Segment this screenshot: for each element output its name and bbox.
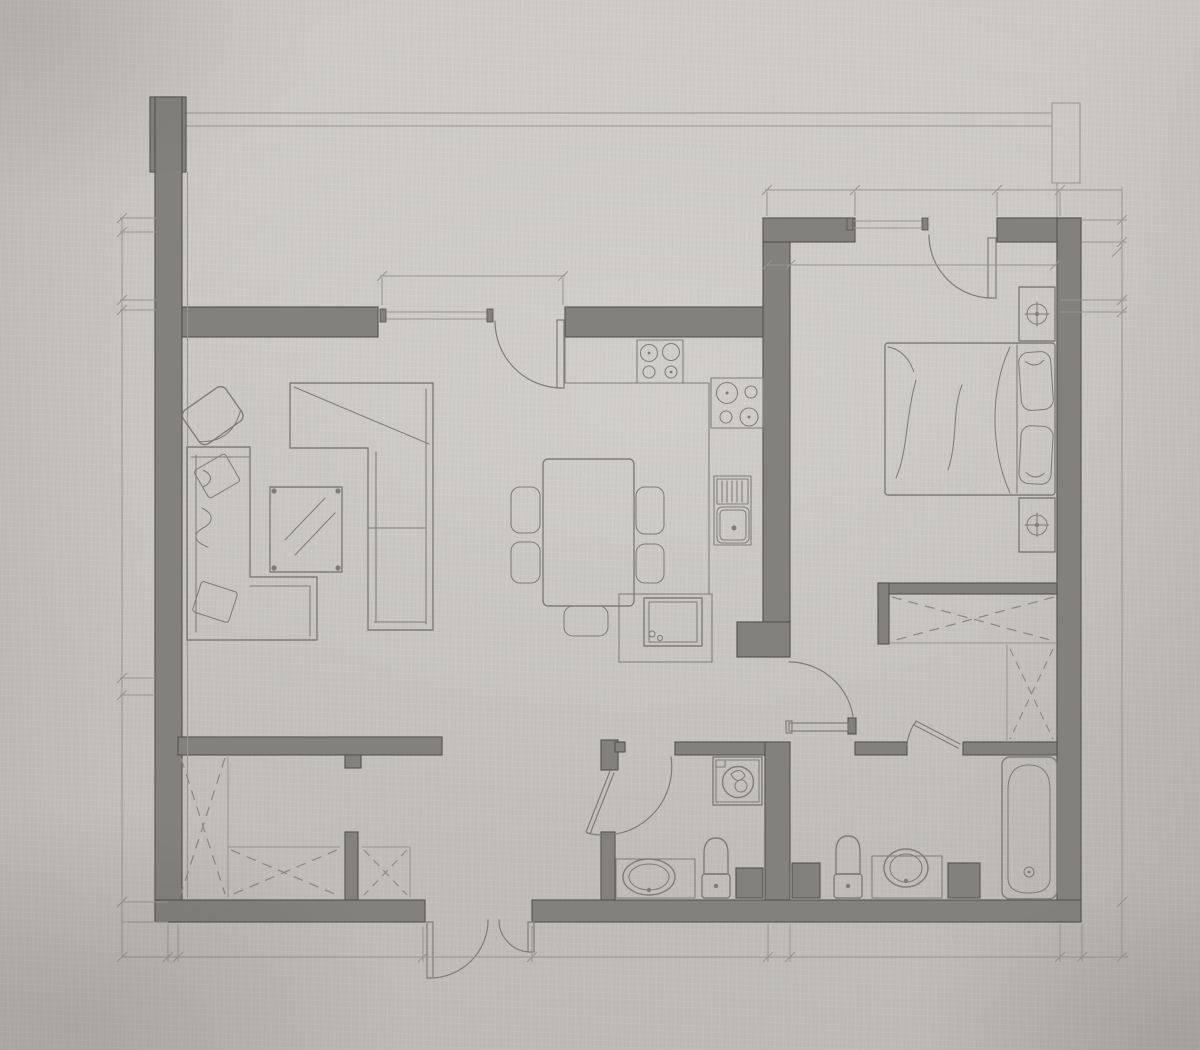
living-window-glazing: [382, 312, 493, 319]
wardrobe-x-dashes: [231, 850, 337, 895]
wall-kitchen-bedroom: [763, 242, 790, 657]
wall-right: [1057, 218, 1081, 922]
hall-bathroom-door: [586, 757, 672, 835]
floor-plan-drawing: [0, 0, 1200, 1050]
wall-bottom-right: [532, 900, 1081, 922]
bathtub: [1002, 757, 1057, 899]
sectional-sofa: [290, 383, 433, 630]
nightstand-bottom: [1019, 498, 1055, 552]
bedroom-window: [847, 218, 928, 230]
bedroom-room-door: [786, 662, 854, 733]
door-leaf: [557, 320, 564, 388]
dining-chair: [564, 606, 608, 636]
wall-storage-notch: [345, 755, 361, 768]
dimension-lines-bottom: [117, 924, 1128, 962]
wall-hall-bath-b: [855, 742, 907, 755]
bed-pillow: [1019, 425, 1054, 485]
living-window-end-cap: [380, 309, 386, 322]
storage-wardrobe-tall: [181, 755, 228, 898]
balcony-terrace: [186, 103, 1081, 218]
entry-double-door: [427, 920, 534, 978]
wall-bathroom-divider: [765, 742, 790, 900]
living-balcony-door: [495, 320, 564, 388]
door-swing-arc: [929, 235, 992, 298]
wall-bedroom-niche: [878, 583, 1057, 594]
vanity-block-mainbath-right: [948, 863, 980, 898]
wardrobe-x-dashes: [364, 850, 407, 895]
door-swing-arc: [907, 724, 914, 745]
kitchen-sink: [714, 476, 751, 545]
dim-risers-above-bedroom: [767, 192, 1060, 216]
corner-sofa-outline: [187, 447, 317, 640]
bed-blanket-folds: [888, 347, 1010, 493]
hallbath-toilet: [702, 838, 730, 898]
dim-risers-living-window: [382, 278, 563, 305]
bathtub-inner: [1008, 765, 1050, 893]
dining-chair: [511, 487, 540, 533]
throw-pillow: [193, 453, 240, 499]
bedroom-window-end-cap: [847, 218, 853, 230]
dining-table: [543, 459, 634, 606]
hallbath-washbasin: [616, 859, 695, 898]
main-bathroom-door: [907, 721, 960, 748]
entry-door-arc-left: [430, 920, 488, 978]
wall-hall-bath-a: [675, 742, 767, 755]
dining-chair: [636, 544, 664, 583]
bed-pillow: [1018, 351, 1054, 411]
dimension-lines-top: [377, 185, 1122, 305]
coffee-table-top: [270, 487, 342, 572]
door-leaf: [586, 771, 614, 834]
wardrobe-x-dashes: [892, 597, 1054, 641]
armchair: [180, 384, 248, 449]
wall-hallbath-left: [601, 832, 615, 900]
walls: [150, 97, 1081, 922]
corner-sofa: [187, 447, 317, 640]
basin-drain-dot: [904, 879, 908, 883]
balcony-pillar-base-line: [1052, 183, 1081, 218]
double-bed: [885, 343, 1055, 495]
mainbath-washbasin: [872, 849, 942, 898]
vanity-block-hallbath: [736, 868, 763, 898]
corner-sofa-cushion-folds: [196, 470, 211, 547]
washing-machine: [713, 757, 762, 805]
main-bathroom-fixtures: [834, 757, 1057, 899]
wardrobe-x-dashes: [1010, 649, 1053, 739]
entry-door-arc-right: [499, 920, 531, 952]
bed-outline: [885, 343, 1055, 495]
sink-drainboard-lines: [722, 481, 742, 502]
wall-bedroom-niche-return: [878, 583, 889, 644]
nightstand-top: [1019, 287, 1055, 341]
storage-wardrobe-wide: [228, 847, 340, 895]
bedroom-wardrobe-1: [890, 597, 1057, 643]
storage-room-furniture: [181, 755, 410, 898]
living-window-end-cap: [487, 309, 493, 322]
entry-door-leaf-right: [528, 922, 534, 952]
bedroom-wardrobe-2: [1007, 645, 1053, 742]
throw-pillow: [192, 581, 238, 623]
wall-left: [155, 97, 182, 922]
wall-storage-divider: [345, 832, 358, 900]
door-leaf: [988, 238, 996, 298]
dining-chair: [511, 542, 540, 583]
wall-storage-top: [178, 737, 442, 755]
washing-machine-drum-swirl: [731, 770, 745, 780]
photographed-paper-sheet: [0, 0, 1200, 1050]
living-room-window: [380, 309, 493, 322]
door-leaf: [914, 721, 960, 748]
wall-living-top: [182, 307, 378, 337]
door-swing-arc: [495, 321, 562, 388]
bedroom-balcony-door: [929, 235, 996, 298]
bedroom-furniture: [885, 287, 1057, 742]
dining-area: [511, 459, 664, 636]
coffee-table-glass-marks: [285, 498, 335, 555]
vanity-block-mainbath-left: [792, 863, 820, 898]
balcony-corner-pillar: [1052, 103, 1080, 183]
wall-kitchen-foot: [737, 622, 790, 657]
cooktop-4-burner: [711, 378, 763, 428]
coffee-table: [270, 487, 342, 572]
bedroom-window-glazing: [850, 221, 925, 228]
dim-ticks-right: [1112, 215, 1127, 907]
bedroom-window-end-cap: [922, 218, 928, 230]
basin-drain-dot: [647, 888, 651, 892]
dining-chair: [636, 487, 664, 534]
sectional-sofa-inner-lines: [294, 387, 429, 624]
sectional-sofa-outline: [290, 383, 433, 630]
wall-hallbath-jamb-nub: [615, 742, 625, 752]
wall-hall-bath-c: [963, 742, 1057, 755]
wall-kitchen-top: [565, 307, 790, 337]
door-leaf: [789, 723, 848, 731]
mainbath-toilet: [834, 836, 862, 898]
wall-bedroom-door-jamb: [848, 718, 856, 734]
sink-faucet-dot: [732, 526, 737, 531]
dimension-lines: [117, 185, 1128, 962]
entry-door-leaf-left: [427, 922, 433, 978]
wall-bedroom-top-left: [763, 218, 855, 242]
hob-4-burner: [637, 340, 683, 383]
dim-extension-lines-bottom: [168, 924, 1082, 962]
door-swing-arc: [789, 662, 854, 727]
storage-wardrobe-small: [362, 847, 410, 898]
living-room-furniture: [180, 383, 433, 640]
wall-bottom-left: [155, 900, 425, 922]
